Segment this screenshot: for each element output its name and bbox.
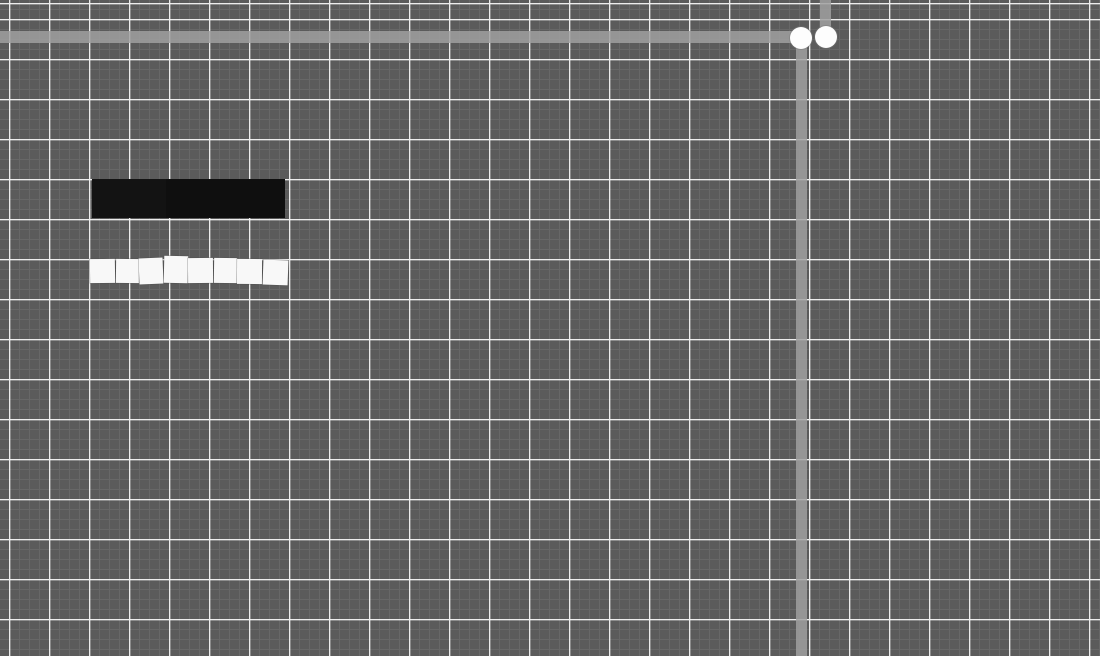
pivot-ball-right[interactable]	[815, 26, 837, 48]
sandbox-canvas[interactable]	[0, 0, 1100, 656]
white-tile-6[interactable]	[213, 257, 236, 282]
white-tile-2[interactable]	[115, 259, 138, 283]
white-tile-8[interactable]	[262, 259, 288, 285]
white-tile-4[interactable]	[163, 255, 188, 282]
black-block-left[interactable]	[92, 179, 166, 218]
white-tile-7[interactable]	[237, 258, 262, 283]
horizontal-beam[interactable]	[0, 31, 795, 43]
pivot-ball-left[interactable]	[790, 27, 812, 49]
white-tile-5[interactable]	[188, 258, 213, 283]
black-block-right[interactable]	[166, 179, 285, 218]
top-vertical-beam[interactable]	[820, 0, 831, 27]
right-vertical-beam[interactable]	[796, 44, 807, 656]
white-tile-1[interactable]	[90, 259, 115, 283]
white-tile-3[interactable]	[139, 258, 164, 285]
